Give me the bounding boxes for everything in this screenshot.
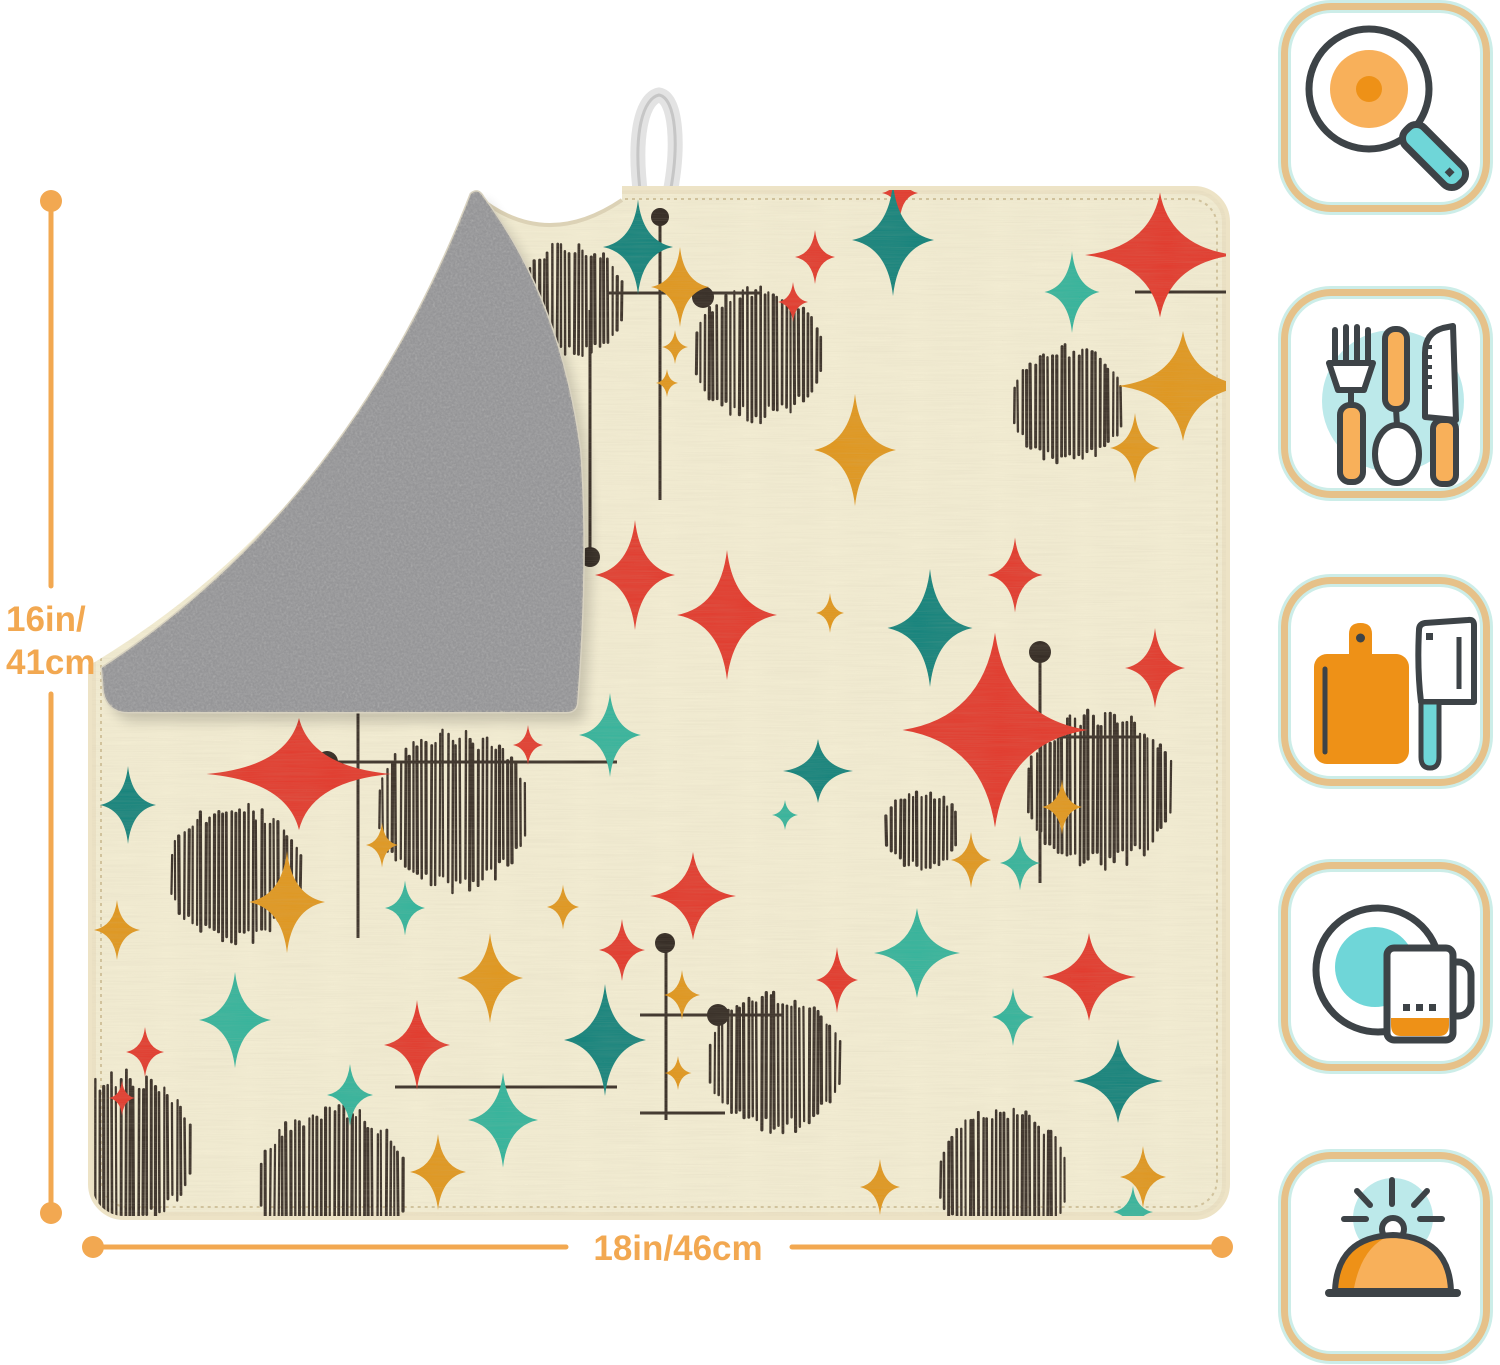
width-label: 18in/46cm	[593, 1229, 762, 1268]
hanging-loop	[638, 95, 675, 198]
width-dimension: 18in/46cm	[82, 1229, 1233, 1268]
serving-cloche-icon	[1281, 1152, 1490, 1361]
height-label-line1: 16in/	[6, 600, 86, 639]
feature-badge-serving	[1281, 1152, 1490, 1361]
product-scene: 16in/ 41cm 18in/46cm	[0, 0, 1500, 1365]
cutting-board-knife-icon	[1281, 577, 1490, 786]
feature-badge-cookware	[1281, 3, 1490, 212]
height-label-line2: 41cm	[6, 643, 96, 682]
frying-pan-search-icon	[1281, 3, 1490, 212]
dish-and-mug-icon	[1281, 862, 1490, 1071]
feature-badge-dishes	[1281, 862, 1490, 1071]
feature-badge-utensils	[1281, 289, 1490, 498]
feature-badge-cutting	[1281, 577, 1490, 786]
cutlery-icon	[1281, 289, 1490, 498]
